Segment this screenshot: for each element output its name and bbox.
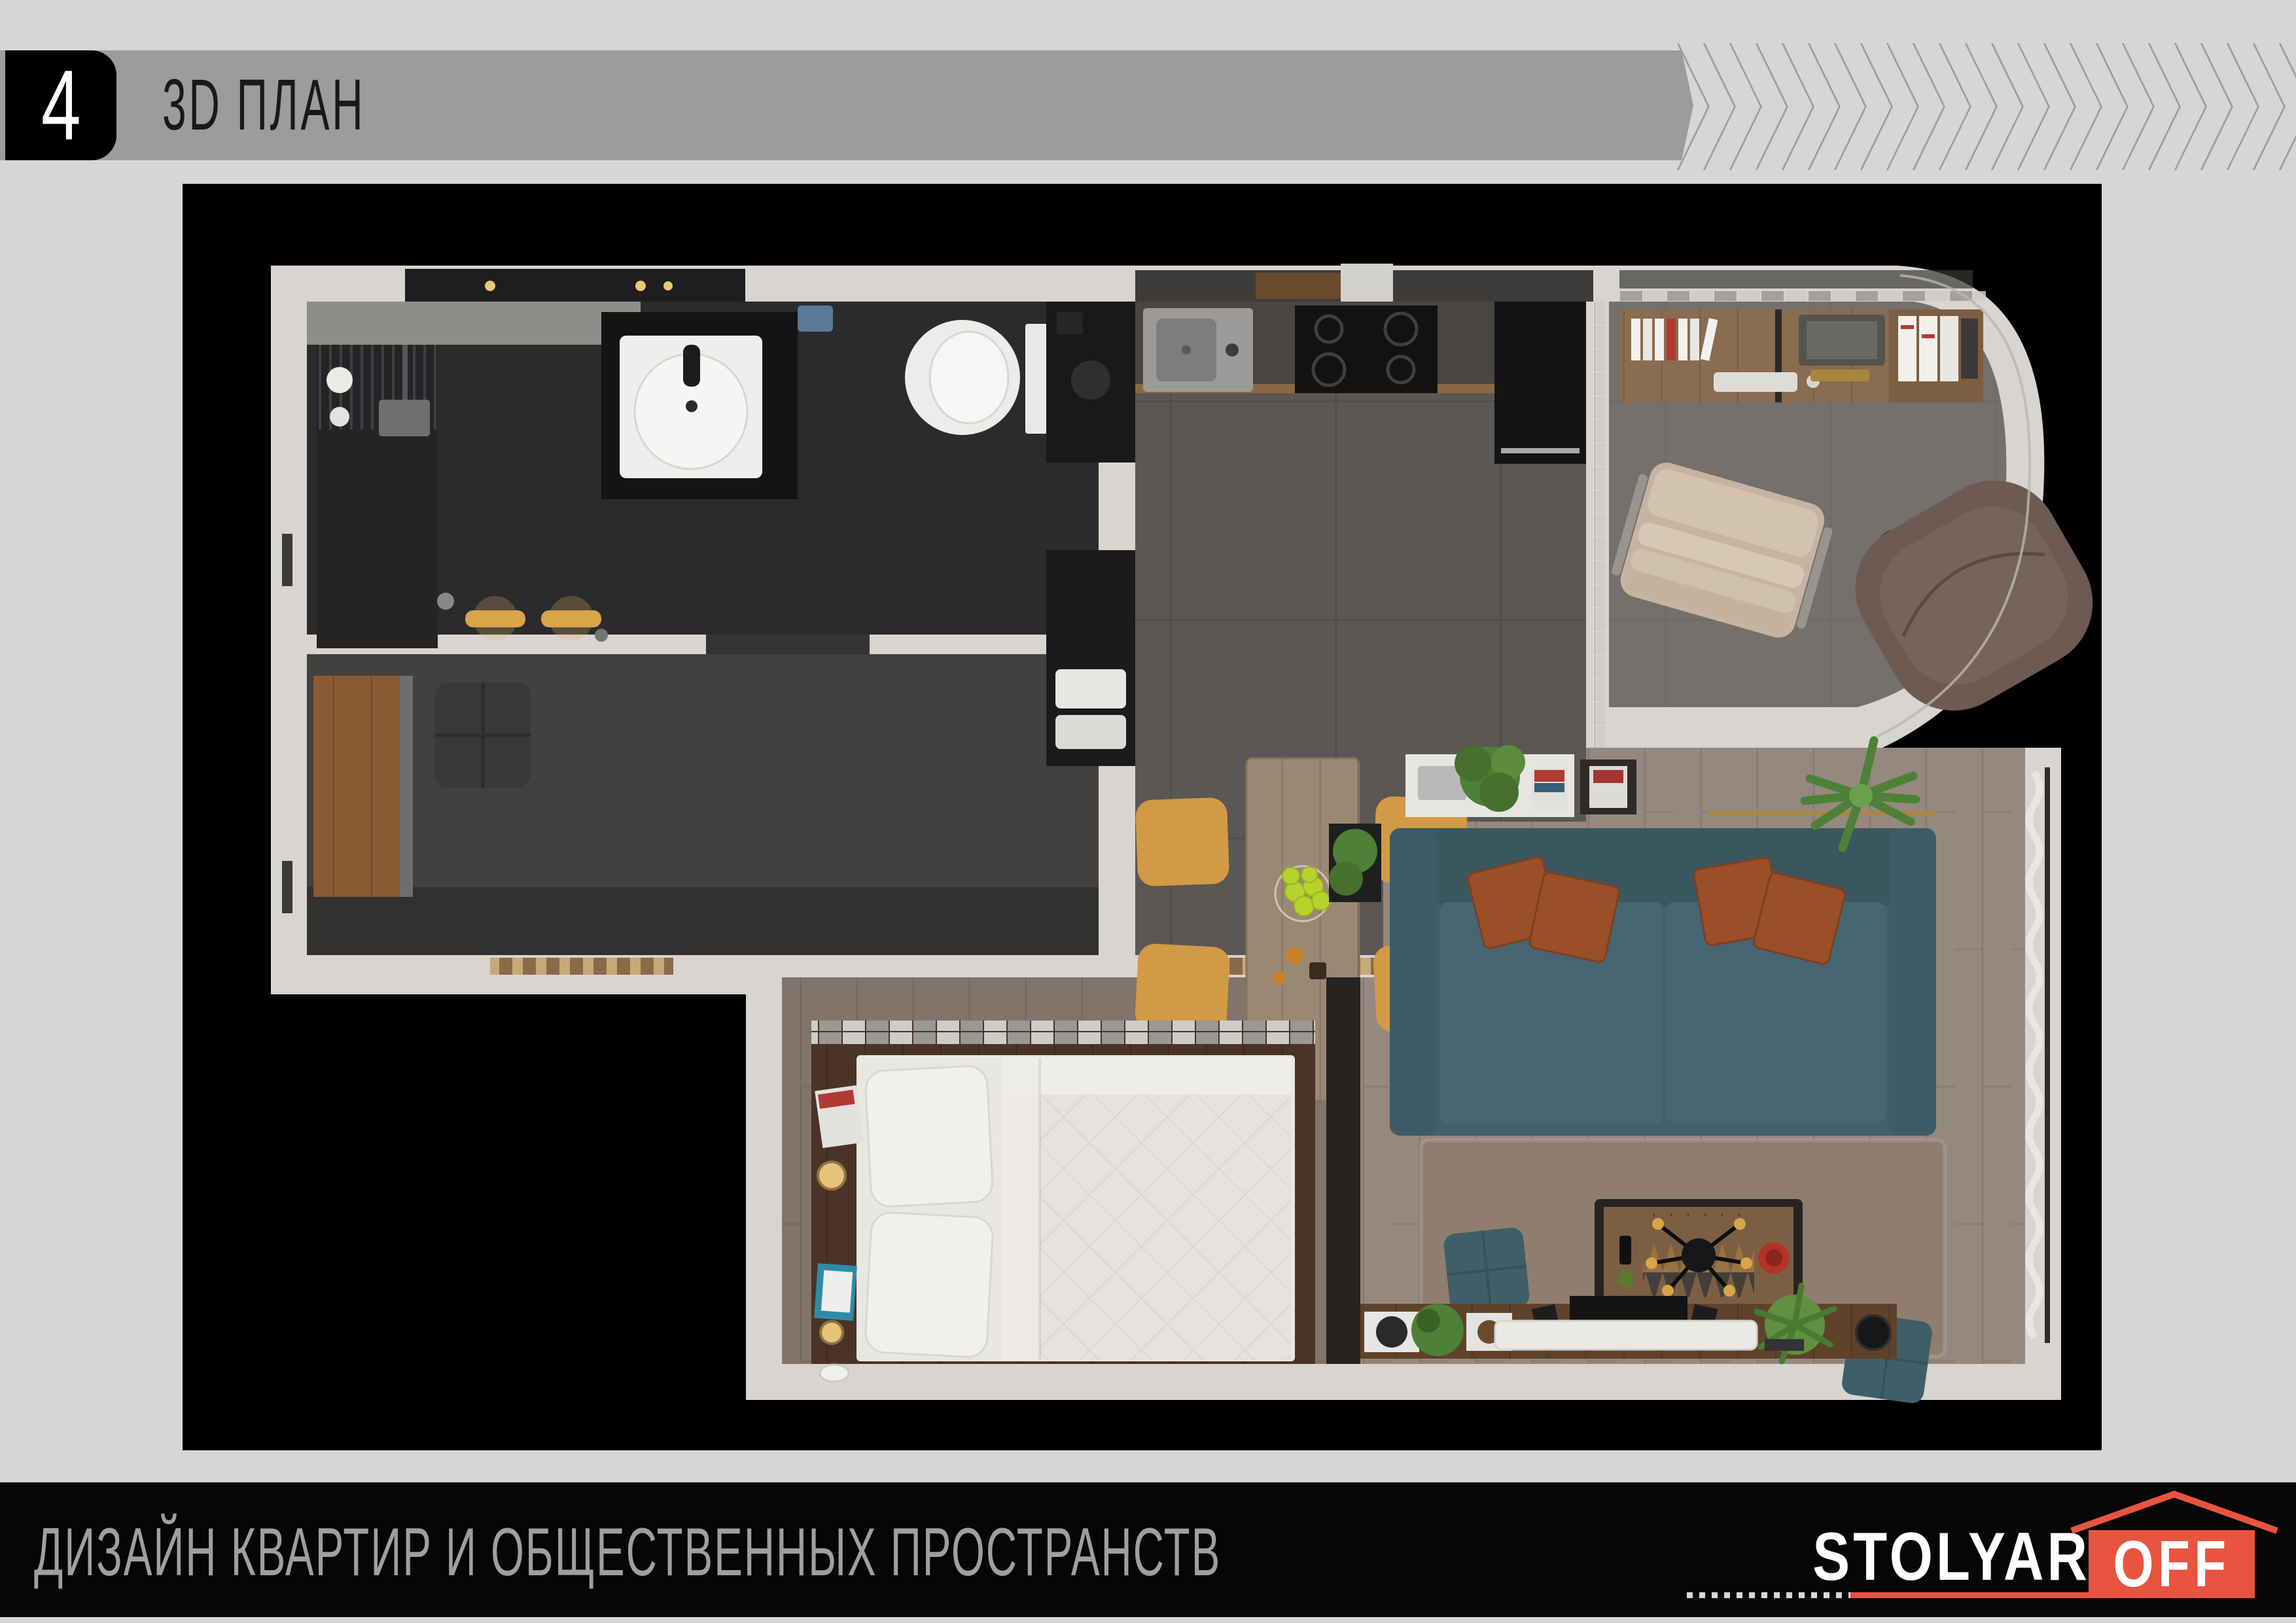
lamp-icon — [818, 1162, 845, 1189]
cooker-hood — [1341, 264, 1393, 303]
duvet — [1002, 1058, 1291, 1360]
faucet-icon — [683, 345, 700, 387]
logo-dashed-line — [1687, 1592, 1850, 1598]
vanity-light — [465, 610, 525, 627]
slide: 4 3D ПЛАН — [0, 0, 2296, 1623]
bowl — [1856, 1316, 1890, 1350]
washer-basket — [798, 305, 833, 332]
dining-chair — [1135, 943, 1231, 1034]
console-plant — [1411, 1304, 1464, 1356]
remote — [1619, 1236, 1631, 1265]
footer-tagline: ДИЗАЙН КВАРТИР И ОБЩЕСТВЕННЫХ ПРОСТРАНСТ… — [34, 1503, 1221, 1601]
bath-counter — [307, 302, 641, 345]
logo-accent-line — [1850, 1592, 2089, 1598]
fridge — [1494, 302, 1586, 464]
coffee-table — [1595, 1199, 1803, 1312]
headboard-tile-strip — [811, 1021, 1315, 1044]
logo-house-block: OFF — [2089, 1530, 2255, 1598]
slide-number: 4 — [41, 48, 81, 163]
logo-text-accent: OFF — [2113, 1527, 2230, 1602]
shower-head — [379, 400, 430, 436]
sofa — [1390, 811, 1936, 1136]
chevron-pattern-icon — [1672, 43, 2296, 170]
bedroom-divider — [1326, 977, 1360, 1364]
floor-transition-strip — [490, 958, 673, 975]
keyboard — [1714, 372, 1797, 392]
bedroom — [811, 1021, 1315, 1382]
room-hallway — [307, 635, 1099, 955]
planter — [1329, 824, 1381, 902]
logo-text: STOLYAR — [1747, 1518, 2091, 1596]
office-glass-edge — [1595, 302, 1605, 748]
slide-number-badge: 4 — [5, 50, 116, 160]
bed-pillow — [865, 1065, 994, 1207]
bathroom-door-gap — [706, 635, 870, 654]
page-title: 3D ПЛАН — [162, 50, 365, 160]
floor-plan-render — [183, 184, 2102, 1450]
house-roof-icon — [2066, 1489, 2282, 1535]
floor-plan-svg — [183, 184, 2102, 1450]
bed-pillow — [865, 1212, 994, 1357]
soundbar — [1495, 1321, 1757, 1350]
dining-chair — [1135, 797, 1230, 887]
lamp-icon — [821, 1321, 843, 1344]
vanity-light — [541, 610, 601, 627]
